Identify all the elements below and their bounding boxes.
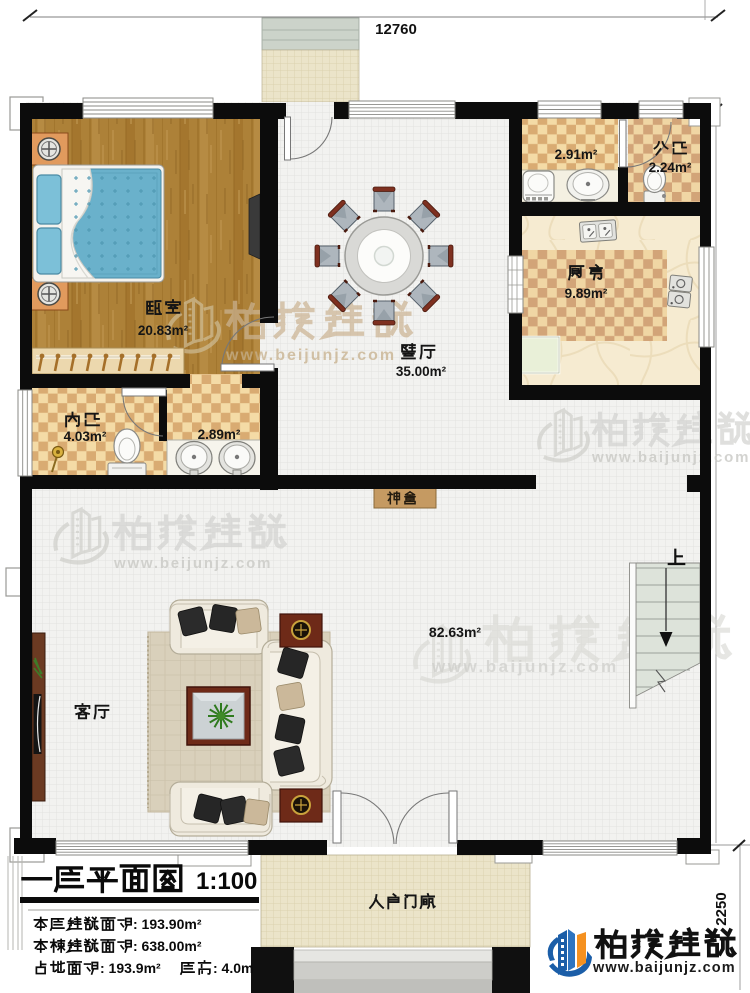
svg-text:www.baijunjz.com: www.baijunjz.com: [592, 960, 736, 976]
svg-text:www.beijunjz.com: www.beijunjz.com: [113, 555, 272, 572]
svg-text:2.89m²: 2.89m²: [198, 427, 241, 442]
svg-text:4.03m²: 4.03m²: [64, 429, 107, 444]
svg-text:www.baijunjz.com: www.baijunjz.com: [431, 657, 619, 676]
svg-text:2.91m²: 2.91m²: [555, 147, 598, 162]
svg-text:1:100: 1:100: [196, 868, 257, 895]
svg-text:www.baijunjz.com: www.baijunjz.com: [591, 449, 750, 466]
svg-text:20.83m²: 20.83m²: [138, 323, 189, 338]
svg-text:2250: 2250: [713, 892, 730, 925]
svg-text:: 193.90m²: : 193.90m²: [133, 916, 202, 932]
svg-text:82.63m²: 82.63m²: [429, 624, 481, 640]
svg-text:: 4.0m: : 4.0m: [213, 960, 253, 976]
svg-text:9.89m²: 9.89m²: [565, 286, 608, 301]
svg-text:2.24m²: 2.24m²: [649, 160, 692, 175]
svg-text:35.00m²: 35.00m²: [396, 364, 447, 379]
svg-text:www.beijunjz.com: www.beijunjz.com: [225, 347, 396, 364]
svg-text:: 193.9m²: : 193.9m²: [100, 960, 161, 976]
svg-text:: 638.00m²: : 638.00m²: [133, 938, 202, 954]
svg-text:12760: 12760: [375, 21, 417, 38]
